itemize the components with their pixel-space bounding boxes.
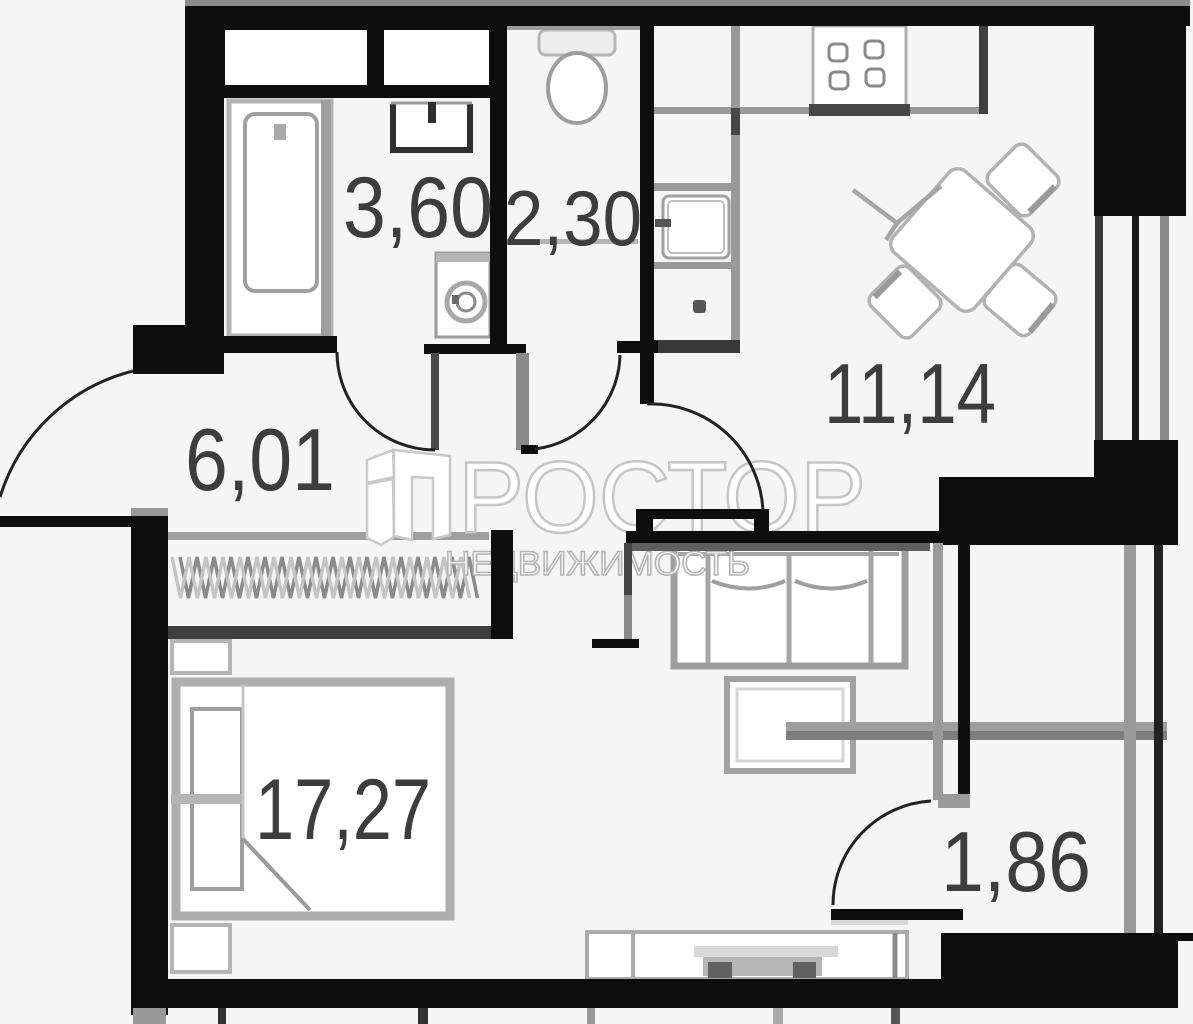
svg-text:3,60: 3,60 <box>343 160 493 256</box>
svg-text:17,27: 17,27 <box>255 762 431 858</box>
svg-text:2,30: 2,30 <box>504 174 642 262</box>
svg-text:6,01: 6,01 <box>185 410 335 509</box>
svg-text:11,14: 11,14 <box>824 347 996 442</box>
svg-text:1,86: 1,86 <box>941 815 1091 910</box>
